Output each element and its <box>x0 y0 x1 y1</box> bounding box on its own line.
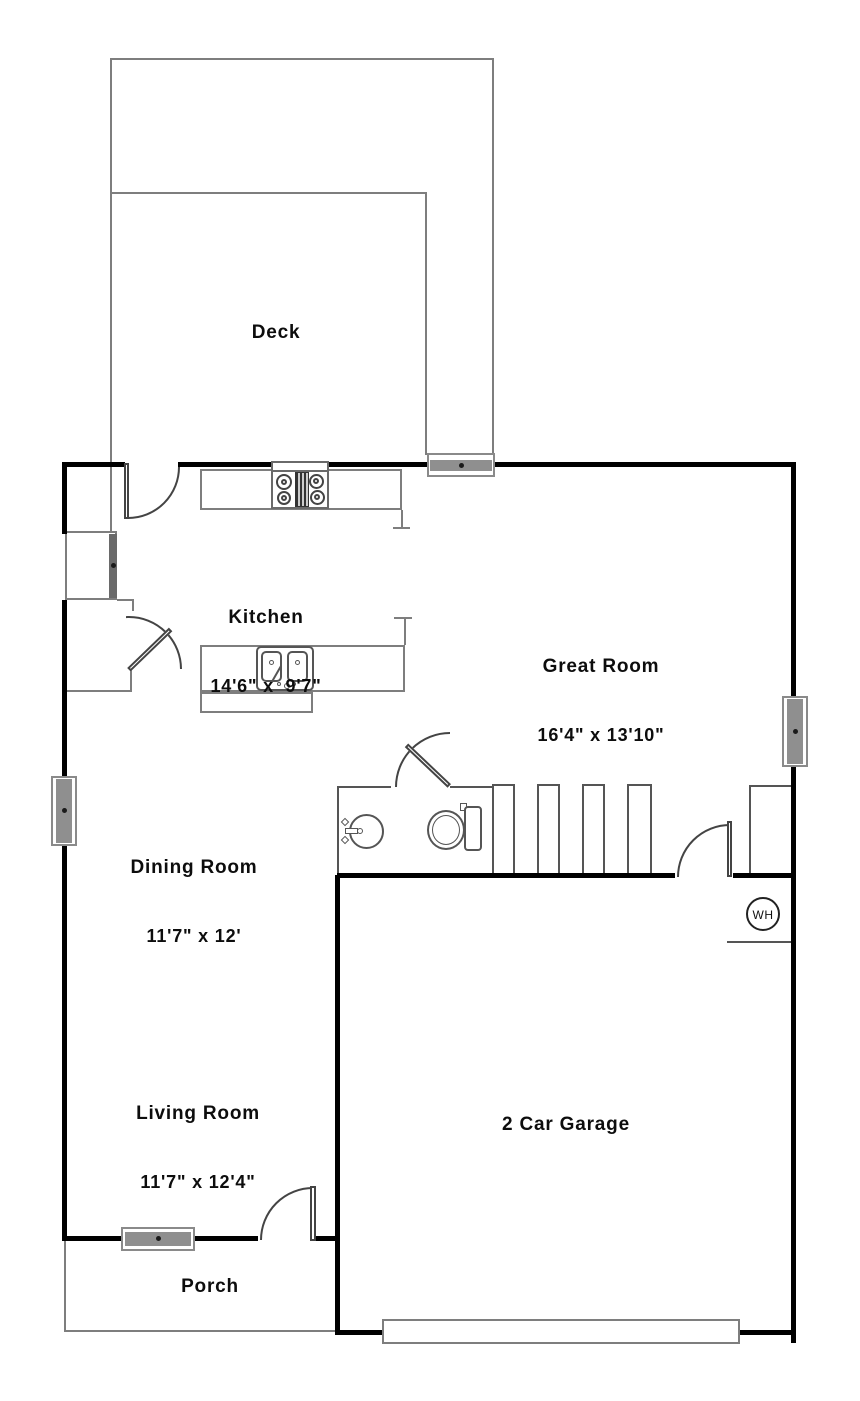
stair-tread <box>650 784 652 876</box>
wall-segment <box>740 1330 796 1335</box>
stove-burner-inner <box>313 478 319 484</box>
stair-tread <box>627 784 629 876</box>
wall-segment <box>791 765 796 1343</box>
garage-overhead-door <box>382 1319 740 1344</box>
porch-label: Porch <box>181 1275 239 1298</box>
dining-room-name: Dining Room <box>130 856 257 879</box>
hall-garage-wall <box>337 873 675 878</box>
stair-tread-top <box>492 784 515 786</box>
water-heater-symbol: WH <box>746 897 780 931</box>
porch-outline <box>64 1241 66 1332</box>
bathroom-wall <box>337 786 391 788</box>
stair-tread <box>537 784 539 876</box>
stair-tread <box>603 784 605 876</box>
garage-left-wall <box>335 875 340 1335</box>
pantry-closet-wall <box>130 669 132 692</box>
hall-garage-wall <box>733 873 796 878</box>
stair-tread <box>492 784 494 876</box>
water-heater-label: WH <box>748 908 778 922</box>
wall-segment <box>62 462 125 467</box>
garage-door-arc <box>677 824 730 877</box>
water-heater-shelf-line <box>727 941 793 943</box>
faucet-handle <box>341 818 349 826</box>
living-room-label: Living Room 11'7" x 12'4" <box>136 1056 260 1240</box>
living-room-name: Living Room <box>136 1102 260 1125</box>
dining-room-dims: 11'7" x 12' <box>130 925 257 948</box>
great-room-label: Great Room 16'4" x 13'10" <box>538 609 665 793</box>
kitchen-dims: 14'6" x 9'7" <box>210 675 321 698</box>
window-dot <box>62 808 67 813</box>
wall-segment <box>335 1330 382 1335</box>
dining-room-label: Dining Room 11'7" x 12' <box>130 810 257 994</box>
faucet-tip <box>357 828 363 834</box>
wall-segment <box>62 1236 123 1241</box>
pantry-closet-wall <box>64 690 132 692</box>
floor-plan: WH Deck Kitchen 14'6" x 9'7" Great Room … <box>0 0 860 1401</box>
stair-tread <box>582 784 584 876</box>
stair-tread <box>558 784 560 876</box>
counter-end-cap <box>393 527 410 529</box>
kitchen-door-arc <box>128 467 180 519</box>
deck-outline <box>110 467 112 531</box>
stove-burner-inner <box>281 495 287 501</box>
bathroom-wall <box>450 786 493 788</box>
faucet-handle <box>341 836 349 844</box>
window-dot <box>793 729 798 734</box>
deck-label: Deck <box>252 321 301 344</box>
front-door-arc <box>260 1187 313 1240</box>
wall-segment <box>62 462 67 534</box>
garage-door-leaf <box>727 821 732 877</box>
toilet-tank <box>464 806 482 851</box>
stove-burner-inner <box>281 479 287 485</box>
pantry-closet-wall <box>132 599 134 611</box>
great-room-dims: 16'4" x 13'10" <box>538 724 665 747</box>
wall-segment <box>62 845 67 1241</box>
kitchen-door-leaf <box>124 463 129 519</box>
toilet-bowl-inner <box>432 815 460 845</box>
pantry-door-dot <box>111 563 116 568</box>
garage-label: 2 Car Garage <box>502 1113 630 1136</box>
deck-outline <box>110 58 112 464</box>
kitchen-name: Kitchen <box>210 606 321 629</box>
porch-outline <box>64 1330 338 1332</box>
deck-outline <box>492 58 494 455</box>
island-end-cap <box>404 617 406 645</box>
closet-nook-wall <box>749 785 751 875</box>
wall-segment <box>791 462 796 698</box>
kitchen-label: Kitchen 14'6" x 9'7" <box>210 560 321 744</box>
front-door-leaf <box>310 1186 316 1241</box>
bathroom-wall <box>337 786 339 875</box>
deck-outline <box>425 192 427 455</box>
sliding-door-dot <box>459 463 464 468</box>
living-room-dims: 11'7" x 12'4" <box>136 1171 260 1194</box>
great-room-name: Great Room <box>538 655 665 678</box>
deck-outline <box>110 58 494 60</box>
wall-segment <box>62 600 67 777</box>
stove-burner-inner <box>314 494 320 500</box>
wall-segment <box>494 462 796 467</box>
deck-outline <box>110 192 427 194</box>
closet-nook-wall <box>749 785 793 787</box>
stove-center-grill <box>295 472 309 507</box>
island-end-cap <box>394 617 412 619</box>
stair-tread <box>513 784 515 876</box>
